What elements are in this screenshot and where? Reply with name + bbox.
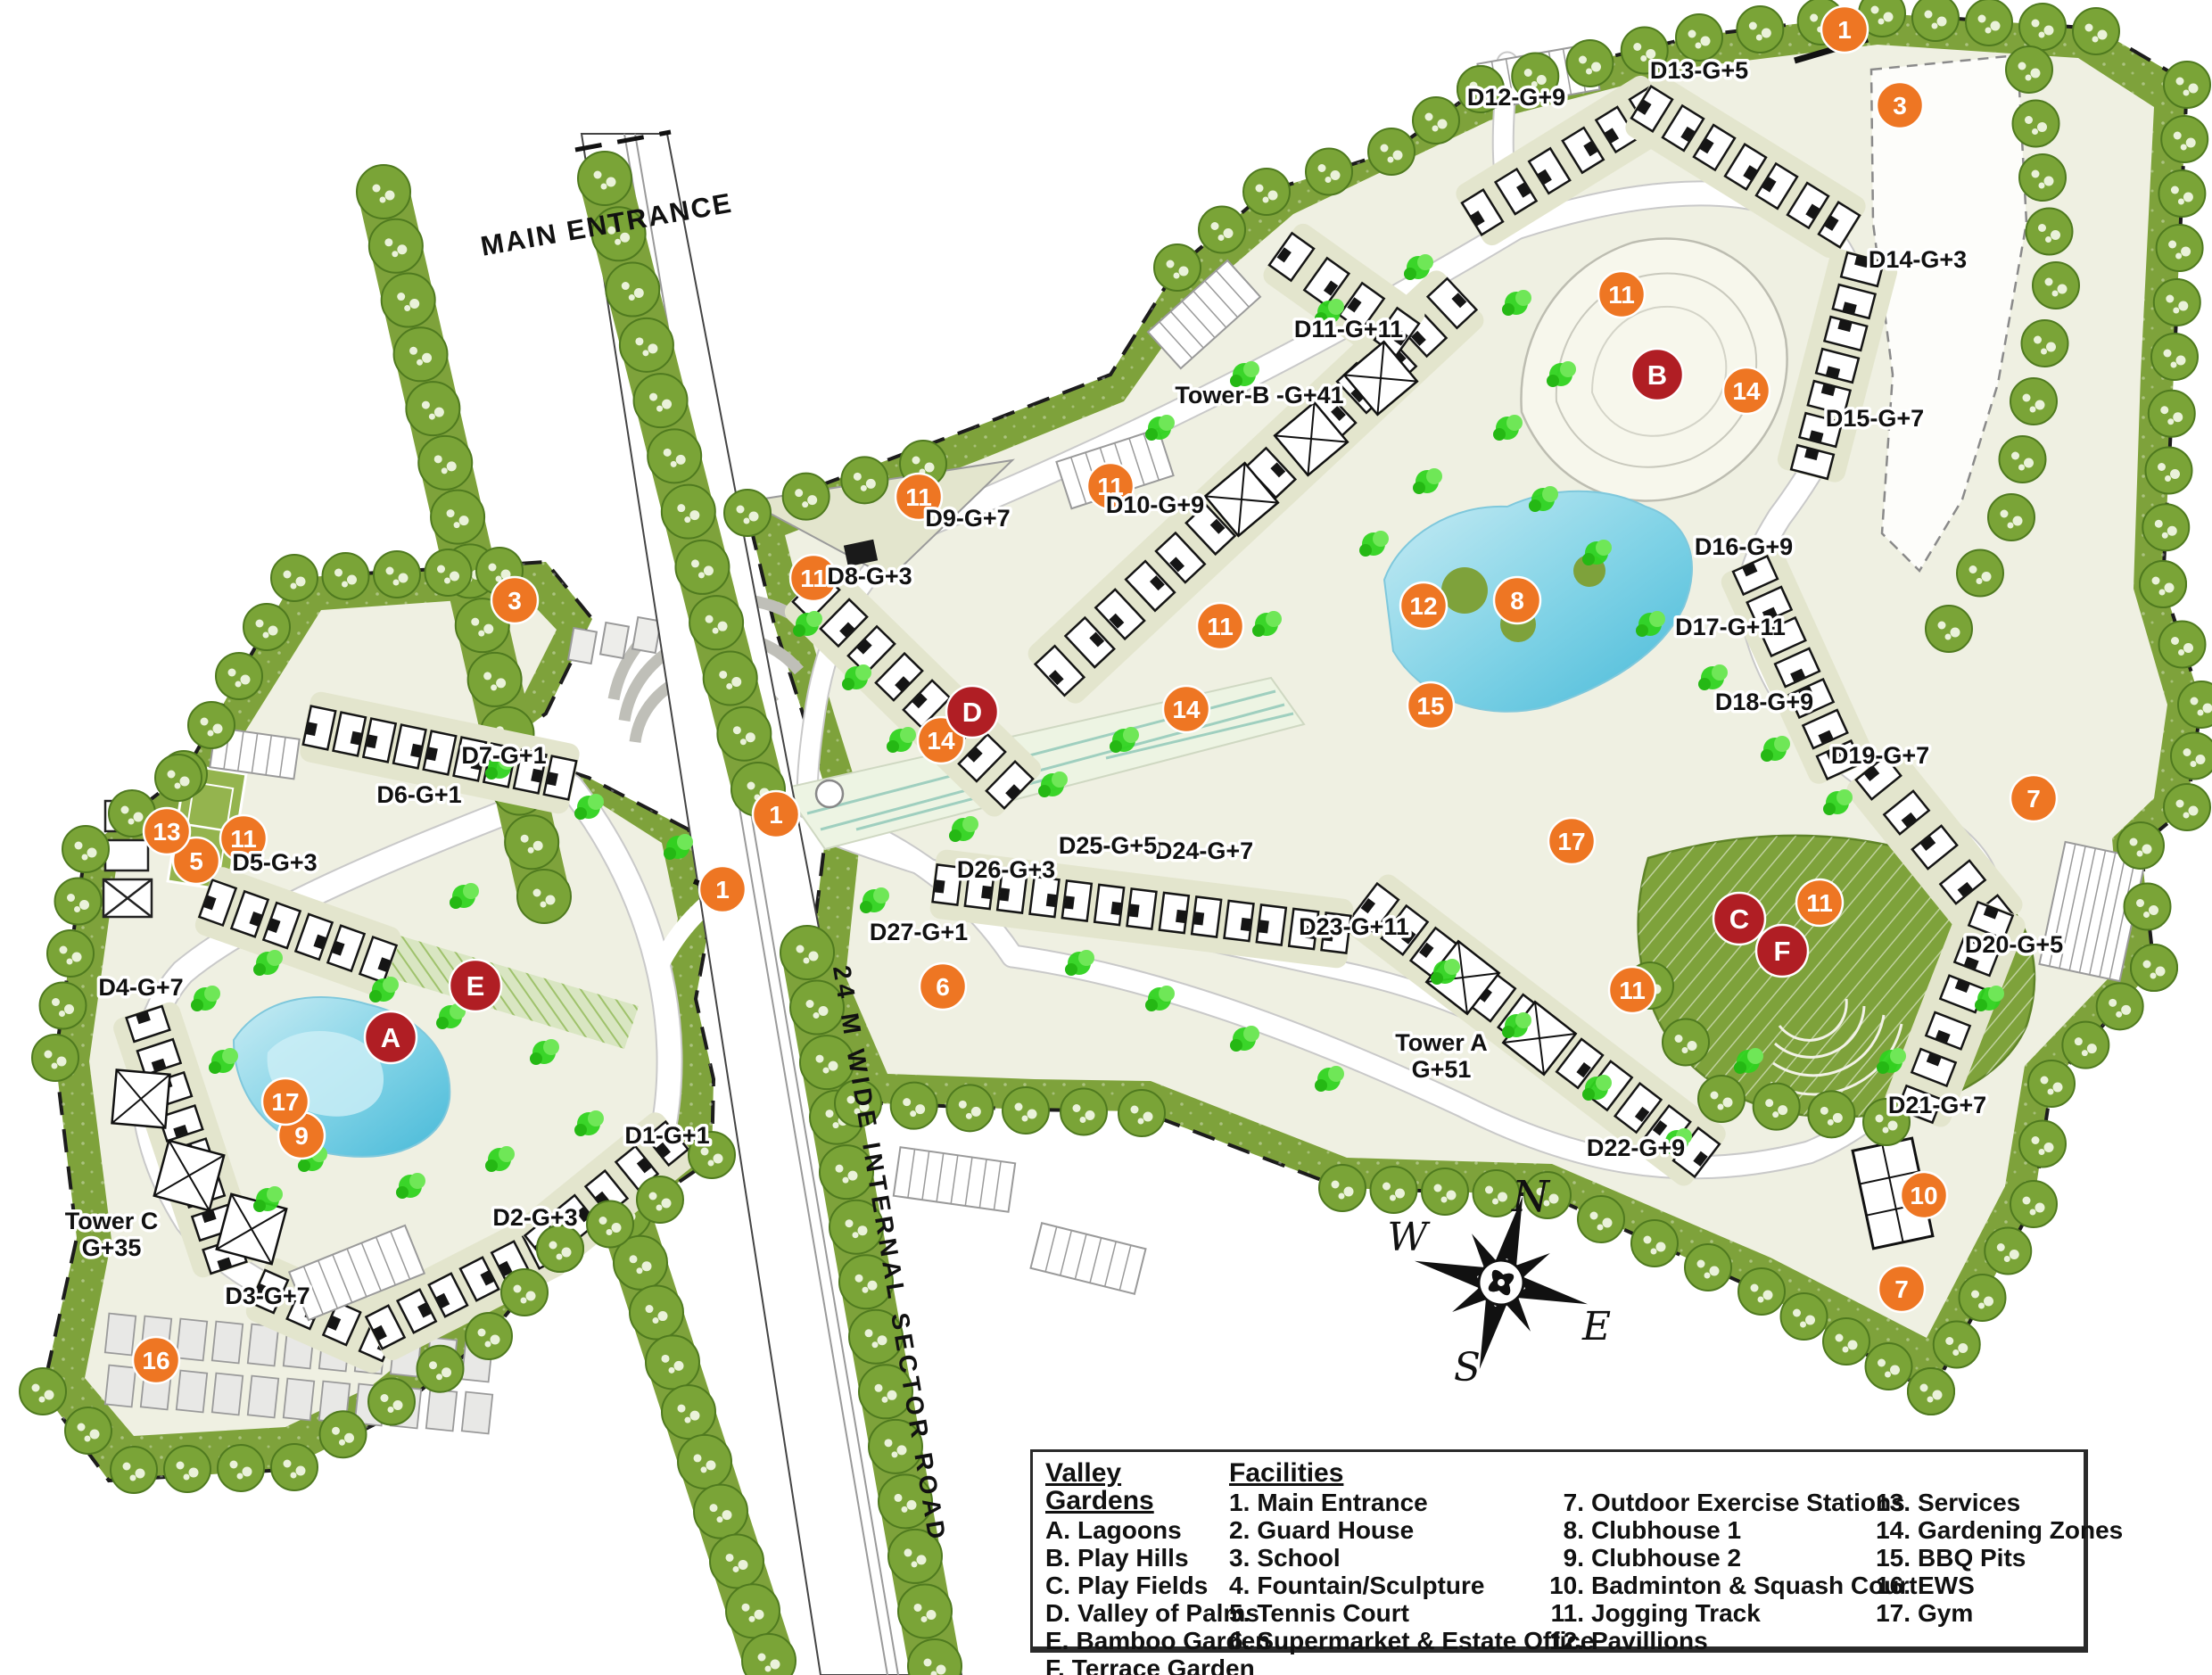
tree bbox=[710, 1534, 763, 1588]
legend-item-key: 12. bbox=[1543, 1627, 1584, 1654]
tree bbox=[694, 1485, 747, 1539]
tree bbox=[111, 1447, 157, 1493]
tree bbox=[1422, 1168, 1468, 1215]
building-label: D3-G+7 bbox=[225, 1283, 310, 1309]
svg-text:11: 11 bbox=[1608, 281, 1635, 309]
legend-item-label: Tennis Court bbox=[1257, 1599, 1409, 1627]
svg-text:11: 11 bbox=[1207, 613, 1234, 640]
legend-gardens-column: Valley Gardens A.LagoonsB.Play HillsC.Pl… bbox=[1045, 1459, 1229, 1646]
legend-item-label: Outdoor Exercise Stations bbox=[1591, 1489, 1905, 1516]
legend-item: A.Lagoons bbox=[1045, 1516, 1229, 1544]
tree bbox=[675, 540, 729, 594]
legend-item-label: School bbox=[1257, 1544, 1340, 1572]
legend-item-key: 10. bbox=[1543, 1572, 1584, 1599]
svg-text:15: 15 bbox=[1416, 692, 1444, 720]
legend-item-label: Main Entrance bbox=[1257, 1489, 1427, 1516]
legend-item: 14.Gardening Zones bbox=[1869, 1516, 2084, 1544]
tree bbox=[1154, 244, 1201, 291]
building-label: D21-G+7 bbox=[1888, 1092, 1986, 1118]
building-label: D24-G+7 bbox=[1155, 837, 1253, 864]
tree bbox=[62, 826, 109, 872]
tree bbox=[2159, 622, 2206, 668]
tree bbox=[726, 1584, 780, 1638]
legend-item-key: 17. bbox=[1869, 1599, 1911, 1627]
tree bbox=[1957, 550, 2003, 597]
tree bbox=[780, 926, 834, 979]
tree bbox=[2073, 8, 2119, 54]
building-label: D10-G+9 bbox=[1106, 491, 1204, 518]
garden-marker-B: B bbox=[1631, 349, 1683, 400]
svg-text:11: 11 bbox=[1806, 889, 1833, 917]
tree bbox=[2010, 378, 2057, 425]
tree bbox=[2006, 46, 2052, 93]
legend-item-key: C. bbox=[1045, 1572, 1070, 1599]
tree bbox=[2097, 983, 2143, 1029]
tree bbox=[2164, 62, 2210, 108]
legend-item-label: Gardening Zones bbox=[1918, 1516, 2123, 1544]
tree bbox=[2140, 561, 2186, 607]
tree bbox=[2013, 101, 2059, 147]
tree bbox=[2157, 225, 2203, 271]
tree bbox=[1866, 1343, 1912, 1390]
ews-unit bbox=[105, 1314, 136, 1356]
legend-item: 1.Main Entrance bbox=[1229, 1489, 1543, 1516]
legend-item-label: Play Hills bbox=[1077, 1544, 1189, 1572]
tree bbox=[417, 1346, 464, 1392]
tree bbox=[1960, 1275, 2006, 1321]
facility-marker-11: 11 bbox=[1796, 879, 1843, 926]
tree bbox=[1118, 1090, 1165, 1136]
facility-marker-3: 3 bbox=[491, 577, 538, 623]
tree bbox=[2010, 1181, 2057, 1227]
building-label: Tower-B -G+41 bbox=[1175, 382, 1343, 408]
building-label: D8-G+3 bbox=[827, 563, 912, 590]
legend-item-key: 7. bbox=[1543, 1489, 1584, 1516]
tree bbox=[2019, 4, 2066, 50]
tree bbox=[1912, 0, 1959, 41]
tree bbox=[1371, 1167, 1417, 1213]
tree bbox=[1966, 0, 2012, 45]
building-label: D22-G+9 bbox=[1587, 1135, 1685, 1161]
legend-item: 15.BBQ Pits bbox=[1869, 1544, 2084, 1572]
facility-marker-11: 11 bbox=[1197, 603, 1243, 649]
tree bbox=[466, 1313, 512, 1359]
tree bbox=[1988, 494, 2035, 540]
parking-lot bbox=[894, 1147, 1015, 1212]
svg-text:B: B bbox=[1647, 359, 1667, 391]
svg-text:12: 12 bbox=[1409, 592, 1437, 620]
legend-item-key: 9. bbox=[1543, 1544, 1584, 1572]
tree bbox=[2171, 733, 2212, 780]
ews-unit bbox=[426, 1390, 457, 1432]
tree bbox=[1685, 1244, 1731, 1291]
tree bbox=[1934, 1322, 1980, 1368]
tree bbox=[704, 651, 757, 705]
tree bbox=[155, 755, 202, 801]
legend-item-key: F. bbox=[1045, 1654, 1065, 1675]
legend-item-key: 1. bbox=[1229, 1489, 1250, 1516]
ews-unit bbox=[177, 1319, 207, 1361]
tree bbox=[2131, 945, 2177, 991]
tree bbox=[662, 485, 715, 539]
building-label: D18-G+9 bbox=[1715, 689, 1813, 715]
tree bbox=[578, 152, 631, 205]
tree bbox=[394, 327, 448, 381]
ews-unit bbox=[212, 1374, 243, 1415]
legend-item-label: Guard House bbox=[1257, 1516, 1414, 1544]
garden-marker-E: E bbox=[450, 960, 501, 1011]
tree bbox=[1663, 1019, 1709, 1066]
fountain-rotary bbox=[816, 780, 843, 807]
tree bbox=[1808, 1091, 1854, 1137]
facility-marker-7: 7 bbox=[1878, 1266, 1925, 1312]
facility-marker-14: 14 bbox=[1163, 686, 1209, 732]
svg-text:C: C bbox=[1729, 904, 1749, 935]
tree bbox=[517, 870, 571, 923]
building-label: D13-G+5 bbox=[1650, 57, 1748, 84]
legend-facilities-column-3: 13.Services14.Gardening Zones15.BBQ Pits… bbox=[1869, 1459, 2084, 1646]
tree bbox=[368, 1379, 415, 1425]
tree bbox=[717, 707, 771, 761]
facility-marker-13: 13 bbox=[144, 808, 190, 854]
tree bbox=[678, 1435, 731, 1489]
building-label: D25-G+5 bbox=[1059, 832, 1157, 859]
building-label: D27-G+1 bbox=[870, 919, 968, 945]
building-label: D2-G+3 bbox=[492, 1204, 577, 1231]
tree bbox=[2019, 1121, 2066, 1168]
tree bbox=[357, 165, 410, 219]
facility-marker-17: 17 bbox=[262, 1078, 309, 1125]
svg-text:1: 1 bbox=[769, 801, 783, 829]
legend-box: Valley Gardens A.LagoonsB.Play HillsC.Pl… bbox=[1030, 1449, 2088, 1653]
tree bbox=[634, 374, 688, 427]
legend-item-key: 13. bbox=[1869, 1489, 1911, 1516]
legend-item-key: D. bbox=[1045, 1599, 1070, 1627]
legend-item-key: 14. bbox=[1869, 1516, 1911, 1544]
facility-marker-14: 14 bbox=[1723, 367, 1770, 414]
tree bbox=[2033, 262, 2079, 309]
svg-text:7: 7 bbox=[2026, 785, 2041, 813]
legend-item-label: Jogging Track bbox=[1591, 1599, 1761, 1627]
building-label: D7-G+1 bbox=[461, 742, 546, 769]
tree bbox=[418, 436, 472, 490]
compass-w: W bbox=[1387, 1215, 1431, 1260]
tree bbox=[1243, 169, 1290, 215]
tree bbox=[271, 555, 318, 601]
building-label: D4-G+7 bbox=[98, 974, 183, 1001]
ews-unit bbox=[212, 1322, 243, 1364]
facility-marker-15: 15 bbox=[1407, 682, 1454, 729]
tree bbox=[2154, 279, 2200, 326]
ews-unit bbox=[248, 1376, 278, 1418]
tree bbox=[65, 1407, 111, 1454]
tree bbox=[783, 474, 829, 520]
compass-n: N bbox=[1511, 1172, 1551, 1222]
svg-text:9: 9 bbox=[294, 1122, 309, 1150]
facility-marker-11: 11 bbox=[1598, 271, 1645, 318]
tree bbox=[323, 553, 369, 599]
tree bbox=[1368, 128, 1415, 175]
tree bbox=[620, 318, 673, 372]
facility-marker-1: 1 bbox=[699, 866, 746, 912]
ews-unit bbox=[284, 1379, 314, 1421]
tree bbox=[891, 1083, 937, 1129]
legend-item-key: 6. bbox=[1229, 1627, 1250, 1654]
parking-lot bbox=[1030, 1223, 1145, 1293]
building-label: D26-G+3 bbox=[957, 856, 1055, 883]
tree bbox=[946, 1085, 993, 1131]
facility-marker-7: 7 bbox=[2010, 775, 2057, 821]
compass-e: E bbox=[1581, 1304, 1611, 1349]
tree bbox=[505, 815, 558, 869]
tree bbox=[1908, 1368, 1954, 1415]
tree bbox=[218, 1445, 264, 1491]
legend-item: 11.Jogging Track bbox=[1543, 1599, 1869, 1627]
legend-item: 16.EWS bbox=[1869, 1572, 2084, 1599]
legend-item-key: 15. bbox=[1869, 1544, 1911, 1572]
tree bbox=[1823, 1318, 1869, 1365]
building-label: D6-G+1 bbox=[376, 781, 461, 808]
legend-item-label: Clubhouse 2 bbox=[1591, 1544, 1741, 1572]
building-label: D14-G+3 bbox=[1869, 246, 1967, 273]
tree bbox=[369, 219, 423, 273]
tree bbox=[2161, 116, 2208, 162]
building-label: D5-G+3 bbox=[232, 849, 317, 876]
tree bbox=[662, 1385, 715, 1439]
svg-text:E: E bbox=[466, 970, 485, 1002]
tree bbox=[587, 1201, 633, 1248]
svg-text:3: 3 bbox=[508, 587, 522, 615]
legend-item-key: 4. bbox=[1229, 1572, 1250, 1599]
legend-item: 5.Tennis Court bbox=[1229, 1599, 1543, 1627]
facility-marker-16: 16 bbox=[133, 1337, 179, 1383]
svg-text:F: F bbox=[1774, 936, 1791, 967]
tree bbox=[1319, 1165, 1366, 1211]
svg-text:1: 1 bbox=[715, 876, 730, 904]
site-plan-svg: N E S W MAIN ENTRANCE 24 M WIDE INTERNAL… bbox=[0, 0, 2212, 1675]
tree bbox=[1737, 6, 1783, 53]
tree bbox=[1413, 97, 1459, 144]
compass-s: S bbox=[1454, 1345, 1481, 1390]
legend-item-key: 8. bbox=[1543, 1516, 1584, 1544]
tree bbox=[243, 604, 290, 650]
building-label: D12-G+9 bbox=[1467, 84, 1565, 111]
tree bbox=[1631, 1220, 1678, 1267]
facility-marker-10: 10 bbox=[1901, 1172, 1947, 1218]
tree bbox=[55, 879, 102, 925]
tree bbox=[406, 382, 459, 435]
tree bbox=[1698, 1076, 1745, 1122]
tree bbox=[2151, 334, 2198, 380]
tree bbox=[164, 1446, 210, 1492]
facility-marker-8: 8 bbox=[1494, 577, 1540, 623]
tree bbox=[2117, 822, 2164, 869]
garden-marker-F: F bbox=[1756, 925, 1808, 977]
legend-item: 9.Clubhouse 2 bbox=[1543, 1544, 1869, 1572]
legend-item-key: B. bbox=[1045, 1544, 1070, 1572]
tree bbox=[431, 491, 484, 544]
tree bbox=[2028, 1060, 2075, 1107]
svg-text:6: 6 bbox=[936, 973, 950, 1001]
svg-text:3: 3 bbox=[1893, 92, 1907, 120]
svg-text:7: 7 bbox=[1894, 1275, 1909, 1303]
tree bbox=[1578, 1196, 1624, 1242]
tree bbox=[501, 1269, 548, 1316]
facility-marker-1: 1 bbox=[1821, 6, 1868, 53]
legend-item: 12.Pavillions bbox=[1543, 1627, 1869, 1654]
tree bbox=[271, 1444, 318, 1490]
legend-item-key: 2. bbox=[1229, 1516, 1250, 1544]
site-plan-stage: N E S W MAIN ENTRANCE 24 M WIDE INTERNAL… bbox=[0, 0, 2212, 1675]
tree bbox=[1754, 1084, 1800, 1130]
legend-item: F.Terrace Garden bbox=[1045, 1654, 1229, 1675]
svg-text:11: 11 bbox=[800, 565, 827, 592]
facility-marker-1: 1 bbox=[753, 791, 799, 837]
tree bbox=[2022, 320, 2068, 367]
legend-item-label: Fountain/Sculpture bbox=[1257, 1572, 1484, 1599]
tree bbox=[216, 653, 262, 699]
tree bbox=[20, 1368, 66, 1415]
legend-item-label: Play Fields bbox=[1077, 1572, 1208, 1599]
legend-item-label: Pavillions bbox=[1591, 1627, 1708, 1654]
facility-marker-6: 6 bbox=[920, 963, 966, 1010]
building-label: D1-G+1 bbox=[624, 1122, 709, 1149]
legend-item: 2.Guard House bbox=[1229, 1516, 1543, 1544]
legend-item-label: Lagoons bbox=[1077, 1516, 1182, 1544]
legend-item-key: A. bbox=[1045, 1516, 1070, 1544]
tower-unit bbox=[111, 1069, 169, 1127]
legend-item-label: Gym bbox=[1918, 1599, 1973, 1627]
tree bbox=[2062, 1022, 2109, 1069]
building-label: D20-G+5 bbox=[1965, 931, 2063, 958]
legend-item: E.Bamboo Garden bbox=[1045, 1627, 1229, 1654]
legend-item-label: Services bbox=[1918, 1489, 2020, 1516]
svg-text:13: 13 bbox=[153, 818, 180, 846]
tree bbox=[188, 702, 235, 748]
building-label: D17-G+11 bbox=[1675, 614, 1786, 640]
legend-item: 6.Supermarket & Estate Office bbox=[1229, 1627, 1543, 1654]
legend-item-key: E. bbox=[1045, 1627, 1069, 1654]
svg-text:17: 17 bbox=[271, 1088, 299, 1116]
tree bbox=[630, 1286, 683, 1340]
tree bbox=[1003, 1087, 1049, 1134]
tree bbox=[1781, 1293, 1828, 1340]
legend-item: 17.Gym bbox=[1869, 1599, 2084, 1627]
tree bbox=[1567, 40, 1614, 87]
tree bbox=[724, 490, 771, 536]
legend-item-label: Clubhouse 1 bbox=[1591, 1516, 1741, 1544]
legend-item: 3.School bbox=[1229, 1544, 1543, 1572]
facility-marker-11: 11 bbox=[1609, 967, 1655, 1013]
tree bbox=[2026, 209, 2073, 255]
tree bbox=[2019, 154, 2066, 201]
garden-marker-A: A bbox=[365, 1011, 417, 1063]
tree bbox=[1676, 14, 1722, 61]
legend-item-label: BBQ Pits bbox=[1918, 1544, 2026, 1572]
tree bbox=[1985, 1228, 2031, 1275]
svg-text:17: 17 bbox=[1557, 828, 1585, 855]
tree bbox=[2125, 884, 2171, 930]
facility-marker-3: 3 bbox=[1877, 82, 1923, 128]
legend-item-key: 3. bbox=[1229, 1544, 1250, 1572]
tree bbox=[1306, 149, 1352, 195]
svg-text:14: 14 bbox=[1172, 696, 1201, 723]
tree bbox=[2149, 391, 2195, 437]
tree bbox=[537, 1225, 583, 1272]
svg-text:8: 8 bbox=[1510, 587, 1524, 615]
building-label: D11-G+11 bbox=[1294, 316, 1403, 342]
tree bbox=[648, 429, 701, 483]
legend-item: B.Play Hills bbox=[1045, 1544, 1229, 1572]
legend-item: 7.Outdoor Exercise Stations bbox=[1543, 1489, 1869, 1516]
svg-text:10: 10 bbox=[1910, 1182, 1937, 1209]
legend-item-key: 16. bbox=[1869, 1572, 1911, 1599]
tree bbox=[2142, 504, 2189, 550]
tree bbox=[2164, 784, 2210, 830]
legend-facilities-header: Facilities bbox=[1229, 1459, 1543, 1487]
legend-item-label: Terrace Garden bbox=[1072, 1654, 1255, 1675]
legend-item: 13.Services bbox=[1869, 1489, 2084, 1516]
tree bbox=[468, 653, 522, 706]
ews-unit bbox=[105, 1366, 136, 1407]
tree bbox=[2158, 170, 2205, 217]
legend-item-label: EWS bbox=[1918, 1572, 1975, 1599]
legend-facilities-column-1: Facilities 1.Main Entrance2.Guard House3… bbox=[1229, 1459, 1543, 1646]
tree bbox=[40, 983, 87, 1029]
legend-item: 8.Clubhouse 1 bbox=[1543, 1516, 1869, 1544]
svg-text:A: A bbox=[381, 1022, 400, 1053]
legend-item: D.Valley of Palms bbox=[1045, 1599, 1229, 1627]
tree bbox=[898, 1584, 952, 1638]
garden-marker-C: C bbox=[1713, 893, 1765, 945]
legend-item: 4.Fountain/Sculpture bbox=[1229, 1572, 1543, 1599]
svg-text:14: 14 bbox=[1732, 377, 1761, 405]
legend-item-key: 5. bbox=[1229, 1599, 1250, 1627]
garden-marker-D: D bbox=[946, 686, 998, 738]
tree bbox=[32, 1035, 78, 1081]
legend-gardens-header: Valley Gardens bbox=[1045, 1459, 1229, 1514]
svg-text:D: D bbox=[962, 697, 982, 728]
ews-unit bbox=[177, 1371, 207, 1413]
legend-item: C.Play Fields bbox=[1045, 1572, 1229, 1599]
legend-facilities-column-2: 7.Outdoor Exercise Stations8.Clubhouse 1… bbox=[1543, 1459, 1869, 1646]
ews-unit bbox=[462, 1392, 492, 1434]
legend-item: 10.Badminton & Squash Court bbox=[1543, 1572, 1869, 1599]
tree bbox=[374, 551, 420, 598]
building-label: D9-G+7 bbox=[925, 505, 1010, 532]
tree bbox=[637, 1176, 683, 1223]
tree bbox=[1061, 1089, 1107, 1135]
tree bbox=[841, 457, 887, 503]
building-label: D19-G+7 bbox=[1831, 742, 1929, 769]
building-label: D15-G+7 bbox=[1826, 405, 1924, 432]
tree bbox=[689, 596, 743, 649]
tree bbox=[1199, 207, 1245, 253]
svg-text:16: 16 bbox=[142, 1347, 169, 1374]
tree bbox=[320, 1411, 367, 1457]
tree bbox=[1926, 606, 1972, 652]
tree bbox=[2146, 448, 2192, 494]
tree bbox=[646, 1335, 699, 1389]
legend-item-key: 11. bbox=[1543, 1599, 1584, 1627]
svg-text:14: 14 bbox=[927, 727, 955, 755]
svg-text:11: 11 bbox=[1619, 977, 1646, 1004]
legend-item-label: Badminton & Squash Court bbox=[1591, 1572, 1918, 1599]
tree bbox=[2000, 436, 2046, 483]
tree bbox=[47, 930, 94, 977]
building-label: D16-G+9 bbox=[1695, 533, 1793, 560]
svg-text:5: 5 bbox=[189, 847, 203, 875]
